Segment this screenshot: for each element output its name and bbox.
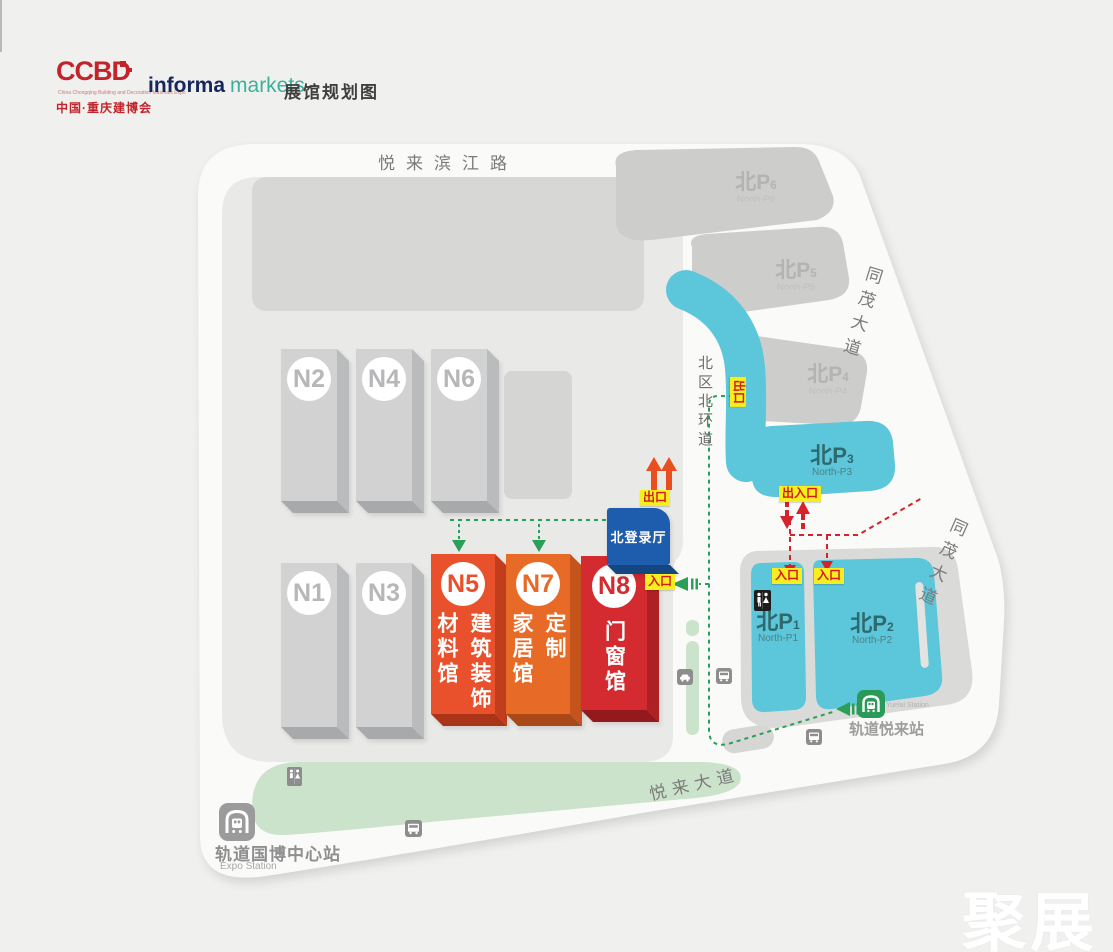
expo-station-en: Expo Station <box>220 861 277 872</box>
hall-n7-custom-home: N7 定制 家居馆 <box>506 554 570 714</box>
hall-n2-badge: N2 <box>287 357 331 401</box>
hall-n6-badge: N6 <box>437 357 481 401</box>
entrance-tag-n8: 入口 <box>645 574 675 590</box>
hall-n1: N1 <box>281 563 337 727</box>
entrance-tag-p2: 入口 <box>814 568 844 584</box>
taxi-icon <box>677 669 693 685</box>
brand-informa: informa <box>148 74 225 97</box>
parking-label-p6: 北P6 North-P6 <box>728 172 784 205</box>
watermark: 聚展 <box>962 872 1098 952</box>
road-label-binjiang: 悦来滨江路 <box>378 149 518 174</box>
hall-n4-badge: N4 <box>362 357 406 401</box>
expo-metro-icon <box>219 803 255 841</box>
exit-tag-top: 出口 <box>640 490 670 506</box>
exhibition-map-page: CCBD China Chongqing Building and Decora… <box>0 0 1113 952</box>
hall-n8-label: 门窗馆 <box>604 620 625 695</box>
road-median-1 <box>686 620 699 636</box>
ccbd-logo: CCBD <box>56 56 130 87</box>
bus-icon <box>716 668 732 684</box>
road-label-north-ring: 北区北环道 <box>694 355 715 450</box>
logo-dot-icon <box>120 61 126 67</box>
hall-n3: N3 <box>356 563 412 727</box>
hall-n1-badge: N1 <box>287 571 331 615</box>
logo-chinese-name: 中国·重庆建博会 <box>56 99 152 116</box>
hall-n7-label-right: 定制 <box>544 612 565 662</box>
hall-n3-badge: N3 <box>362 571 406 615</box>
hall-n8-doors-windows: N8 门窗馆 <box>581 556 647 710</box>
yuelai-station-en: Yuelai Station <box>886 702 929 709</box>
hall-n5-label-right: 建筑装饰 <box>469 612 490 712</box>
logo-dot-icon <box>128 68 132 72</box>
bus-icon <box>405 820 422 837</box>
road-median-2 <box>686 641 699 735</box>
parking-label-p3: 北P3 North-P3 <box>802 444 862 479</box>
parking-label-p2: 北P2 North-P2 <box>842 612 902 647</box>
hall-n7-badge: N7 <box>516 562 560 606</box>
informa-markets-brand: informamarkets <box>148 74 305 98</box>
hall-n6: N6 <box>431 349 487 501</box>
hall-n5-label-left: 材料馆 <box>436 612 457 687</box>
hall-n5-building-materials: N5 建筑装饰 材料馆 <box>431 554 495 714</box>
bus-icon <box>806 729 822 745</box>
restroom-icon <box>754 590 771 611</box>
hall-n4: N4 <box>356 349 412 501</box>
hall-n2: N2 <box>281 349 337 501</box>
yuelai-metro-icon <box>857 690 885 718</box>
north-registration-hall: 北登录厅 <box>607 508 670 565</box>
restroom-icon <box>287 767 302 786</box>
exit-entrance-tag-p3: 出入口 <box>779 486 821 502</box>
large-building-block <box>252 177 644 311</box>
exit-tag-side: 出口 <box>730 377 746 407</box>
parking-label-p5: 北P5 North-P5 <box>768 260 824 293</box>
unlabeled-building <box>504 371 572 499</box>
registration-hall-label: 北登录厅 <box>610 527 666 546</box>
parking-label-p1: 北P1 North-P1 <box>748 610 808 645</box>
yuelai-station-cn: 轨道悦来站 <box>849 718 924 739</box>
hall-n5-badge: N5 <box>441 562 485 606</box>
parking-label-p4: 北P4 North-P4 <box>800 364 856 397</box>
entrance-tag-p1: 入口 <box>772 568 802 584</box>
hall-n7-label-left: 家居馆 <box>511 612 532 687</box>
page-title: 展馆规划图 <box>284 78 379 103</box>
